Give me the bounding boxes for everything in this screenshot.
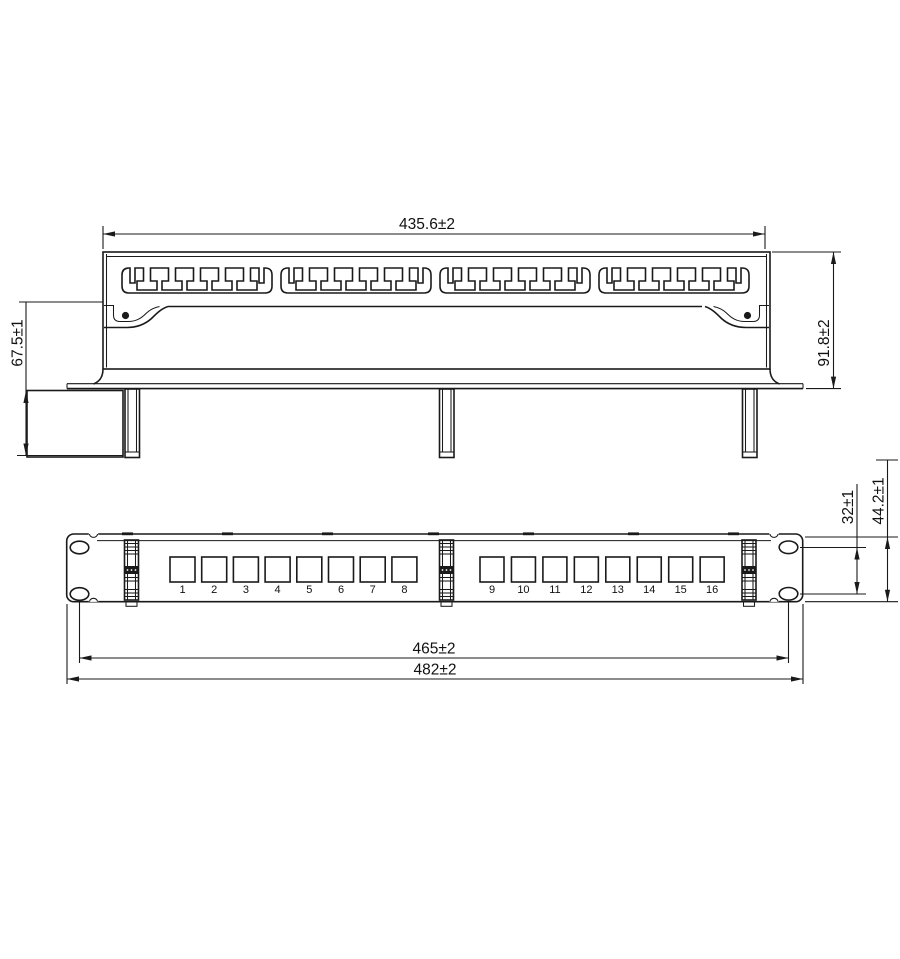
port-cutout (543, 557, 567, 582)
buckle-dot (450, 569, 452, 571)
buckle-dot (127, 569, 129, 571)
buckle-dot (442, 569, 444, 571)
port-number: 8 (401, 584, 407, 596)
port-number: 16 (706, 584, 718, 596)
notch-erase (89, 532, 98, 536)
port-number: 11 (549, 584, 560, 596)
cable-comb-strip (281, 268, 431, 293)
cable-comb-strips (122, 268, 749, 293)
port-number: 7 (370, 584, 376, 596)
port-cutout (606, 557, 630, 582)
port-cutout (233, 557, 258, 582)
rivet-dot-right (744, 312, 751, 319)
top-edge-slot-mark (628, 532, 639, 535)
port-cutout (329, 557, 354, 582)
dim-top-width-label: 435.6±2 (399, 216, 455, 233)
port-cutout (637, 557, 661, 582)
side-support-box (27, 391, 123, 458)
drawing-page: 435.6±2 91.8±2 67.5±1 123456789101112131… (0, 0, 900, 959)
port-cutout (700, 557, 724, 582)
rear-leg (440, 389, 455, 458)
buckle-dot (744, 569, 746, 571)
port-number: 1 (179, 584, 185, 596)
dim-hole-pitch-label: 32±1 (840, 490, 857, 524)
port-cutout (360, 557, 385, 582)
mounting-hole-oval (70, 588, 89, 601)
buckle-dot (131, 569, 133, 571)
rear-leg (125, 389, 140, 458)
top-edge-slot-mark (428, 532, 439, 535)
port-number: 10 (517, 584, 529, 596)
ports-group: 12345678910111213141516 (170, 557, 724, 596)
dim-top-height-label: 91.8±2 (816, 319, 833, 366)
port-number: 3 (243, 584, 249, 596)
port-number: 9 (489, 584, 495, 596)
mounting-hole-oval (779, 588, 798, 601)
base-flare-left (94, 369, 104, 384)
port-cutout (669, 557, 693, 582)
top-view (27, 252, 803, 458)
port-number: 13 (612, 584, 624, 596)
top-edge-slot-mark (222, 532, 233, 535)
buckle-dot (446, 569, 448, 571)
dim-panel-height-label: 44.2±1 (871, 477, 888, 524)
dim-hole-span-label: 465±2 (413, 641, 456, 658)
rear-leg (743, 389, 758, 458)
base-flare-right (770, 369, 780, 384)
port-cutout (574, 557, 598, 582)
port-number: 12 (580, 584, 592, 596)
buckle-dot (135, 569, 137, 571)
port-cutout (480, 557, 504, 582)
port-cutout (265, 557, 290, 582)
cable-comb-strip (599, 268, 749, 293)
mounting-hole-oval (70, 541, 89, 554)
port-cutout (392, 557, 417, 582)
port-number: 14 (643, 584, 655, 596)
top-edge-slot-mark (728, 532, 739, 535)
port-number: 15 (675, 584, 687, 596)
rivet-dot-left (122, 312, 129, 319)
top-edge-slot-mark (122, 532, 133, 535)
port-number: 2 (211, 584, 217, 596)
port-number: 5 (306, 584, 312, 596)
front-view: 12345678910111213141516 (67, 532, 803, 607)
top-edge-slot-mark (322, 532, 333, 535)
port-cutout (170, 557, 195, 582)
port-number: 6 (338, 584, 344, 596)
port-cutout (297, 557, 322, 582)
buckle-dot (752, 569, 754, 571)
port-number: 4 (275, 584, 281, 596)
port-cutout (511, 557, 535, 582)
mounting-hole-oval (779, 541, 798, 554)
cable-comb-strip (440, 268, 590, 293)
patch-panel-technical-drawing: 435.6±2 91.8±2 67.5±1 123456789101112131… (0, 0, 900, 959)
top-edge-slot-mark (523, 532, 534, 535)
dim-overall-width-label: 482±2 (414, 662, 457, 679)
dim-top-depth-label: 67.5±1 (10, 319, 27, 366)
cable-comb-strip (122, 268, 272, 293)
notch-erase (769, 532, 778, 536)
port-cutout (202, 557, 227, 582)
rear-legs (125, 389, 757, 458)
front-view-dimensions: 465±2 482±2 32±1 44.2±1 (67, 460, 898, 684)
buckle-dot (748, 569, 750, 571)
